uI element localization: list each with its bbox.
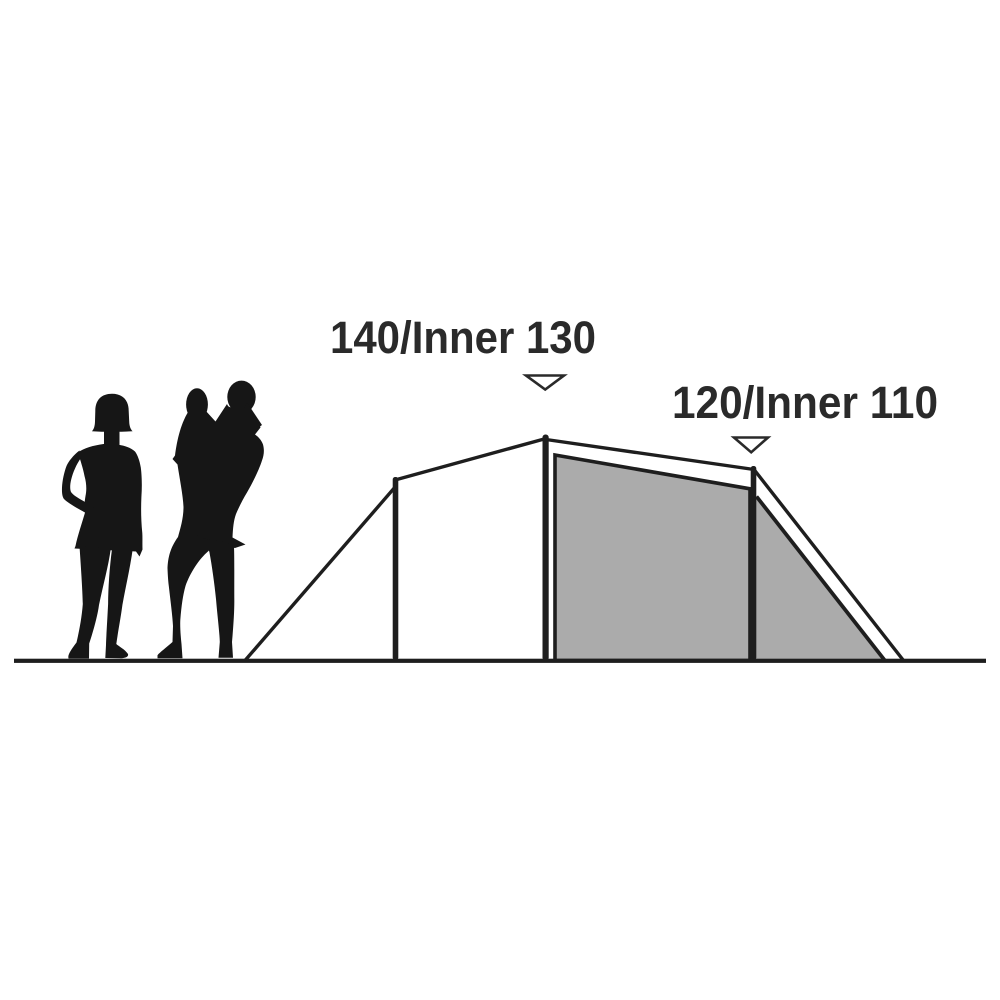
svg-text:140/Inner 130: 140/Inner 130 xyxy=(330,312,596,363)
svg-text:120/Inner 110: 120/Inner 110 xyxy=(672,377,938,428)
